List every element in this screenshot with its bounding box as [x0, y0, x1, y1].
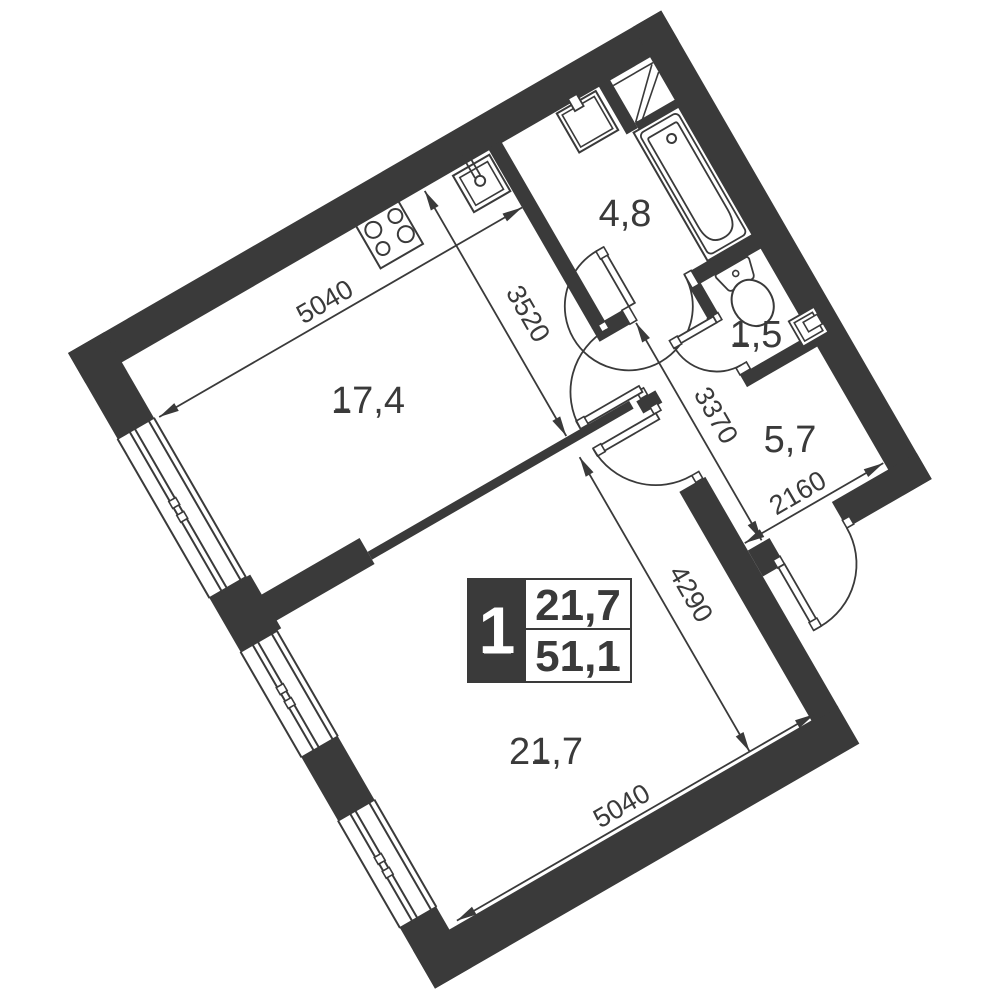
svg-text:51,1: 51,1 — [535, 632, 621, 681]
svg-text:4,8: 4,8 — [599, 193, 652, 235]
svg-text:1,5: 1,5 — [730, 314, 783, 356]
svg-text:17,4: 17,4 — [331, 380, 405, 422]
svg-text:21,7: 21,7 — [535, 581, 621, 630]
svg-text:5,7: 5,7 — [764, 419, 817, 461]
svg-text:1: 1 — [479, 593, 516, 667]
svg-text:21,7: 21,7 — [509, 731, 583, 773]
